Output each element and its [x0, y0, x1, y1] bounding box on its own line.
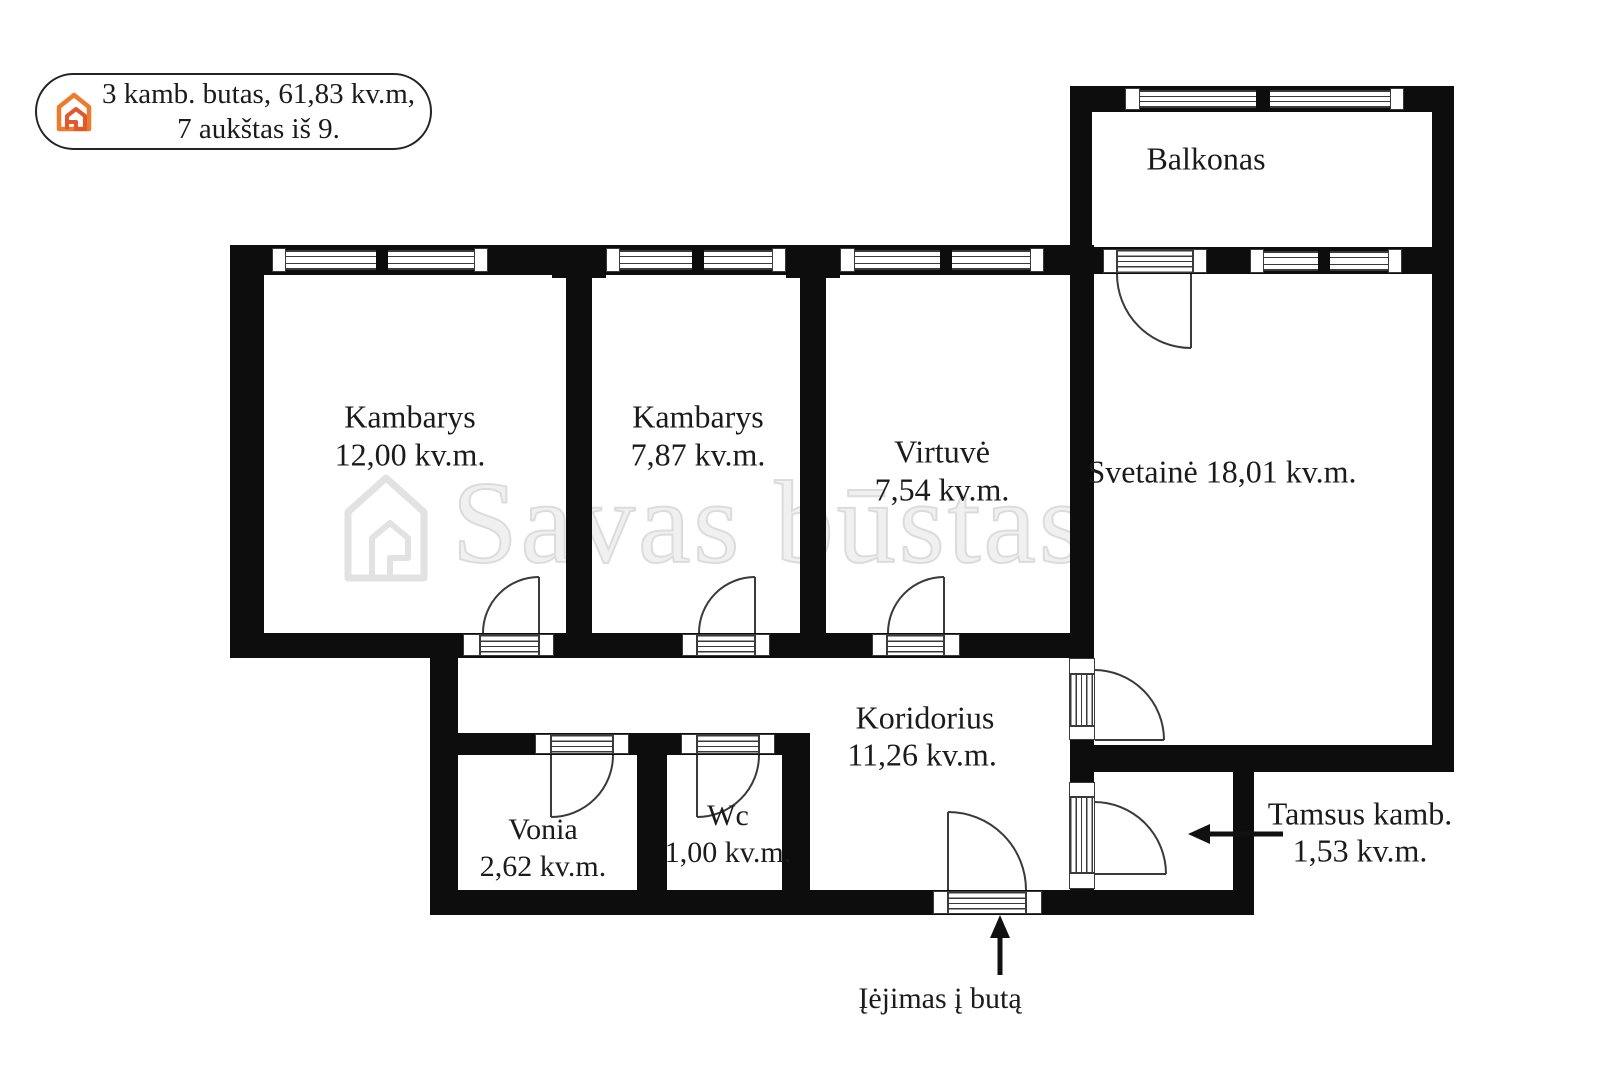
room-label-svetaine: Svetainė 18,01 kv.m.	[1088, 454, 1357, 491]
tamsus-arrow-head	[1188, 824, 1210, 844]
badge-line2: 7 aukštas iš 9.	[97, 112, 420, 147]
room-label-balkonas: Balkonas	[1146, 141, 1265, 178]
door-swings-and-arrows	[0, 0, 1620, 1080]
room-label-virtuve: Virtuvė	[894, 434, 990, 471]
badge-line1: 3 kamb. butas, 61,83 kv.m,	[97, 77, 420, 112]
room-area-wc: 1,00 kv.m.	[665, 836, 791, 870]
room-area-vonia: 2,62 kv.m.	[480, 850, 606, 884]
entrance-arrow-head	[990, 915, 1010, 938]
vonia-door-swing	[551, 755, 613, 817]
room-label-tamsus: Tamsus kamb.	[1268, 796, 1452, 833]
title-badge: 3 kamb. butas, 61,83 kv.m, 7 aukštas iš …	[35, 73, 432, 150]
room-label-wc: Wc	[707, 799, 749, 833]
kambarys2-door-swing	[699, 577, 755, 633]
room-area-koridorius: 11,26 kv.m.	[847, 737, 997, 774]
house-icon	[51, 89, 97, 135]
room-area-virtuve: 7,54 kv.m.	[875, 472, 1010, 509]
svetaine-door-swing	[1094, 670, 1164, 740]
virtuve-door-swing	[888, 577, 944, 633]
floor-plan: Savas būstas	[0, 0, 1620, 1080]
kambarys1-door-swing	[483, 577, 539, 633]
entrance-label: Įėjimas į butą	[858, 982, 1021, 1016]
badge-text: 3 kamb. butas, 61,83 kv.m, 7 aukštas iš …	[97, 77, 430, 147]
room-label-kambarys2: Kambarys	[632, 399, 764, 436]
room-label-vonia: Vonia	[508, 813, 577, 847]
entrance-door-swing	[948, 812, 1026, 890]
room-area-kambarys1: 12,00 kv.m.	[335, 437, 486, 474]
tamsus-door-swing	[1094, 802, 1166, 874]
room-label-kambarys1: Kambarys	[344, 399, 476, 436]
room-area-kambarys2: 7,87 kv.m.	[631, 437, 766, 474]
balcony-door-swing	[1117, 274, 1191, 348]
room-area-tamsus: 1,53 kv.m.	[1293, 833, 1428, 870]
room-label-koridorius: Koridorius	[856, 700, 995, 737]
